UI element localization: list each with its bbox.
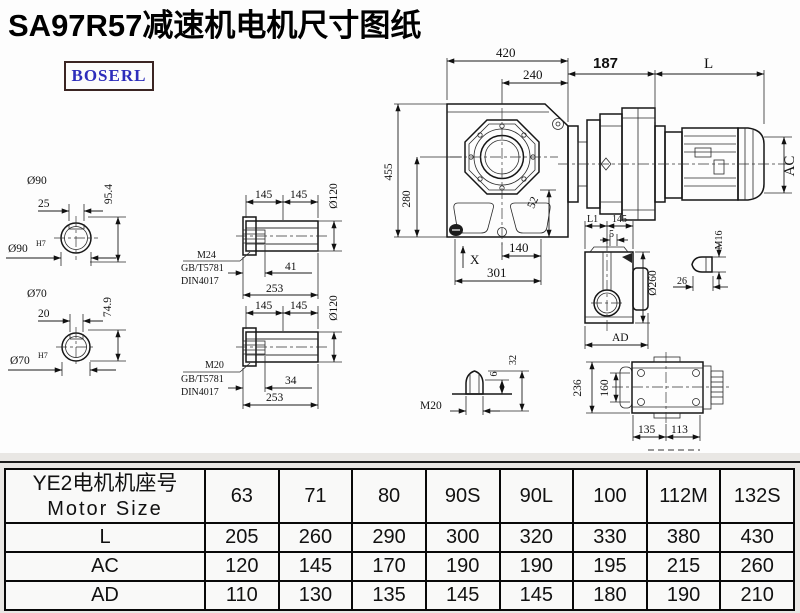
dim-AC: AC [782, 156, 798, 177]
dim-70h7-label: Ø70 [10, 355, 30, 367]
cell-L-90s: 300 [426, 523, 500, 552]
dim-140: 140 [509, 240, 529, 255]
dim-32: 32 [508, 355, 519, 365]
cell-AC-100: 195 [573, 552, 647, 581]
table-row-AC: AC 120 145 170 190 190 195 215 260 [5, 552, 794, 581]
dim-d260: Ø260 [647, 270, 659, 296]
dim-5: 5 [609, 229, 614, 240]
cell-L-100: 330 [573, 523, 647, 552]
m16-plug-detail: M16 26 [673, 231, 728, 291]
cell-AC-132s: 260 [720, 552, 794, 581]
dim-145-b: 145 [290, 189, 308, 201]
dim-74-9: 74.9 [102, 297, 114, 317]
row-label-L: L [5, 523, 205, 552]
cell-AD-90s: 145 [426, 581, 500, 610]
dim-145-c: 145 [255, 300, 273, 312]
dim-420: 420 [496, 45, 516, 60]
dim-70-label: Ø70 [27, 288, 47, 300]
dim-113: 113 [671, 424, 688, 436]
table-top-separator [0, 461, 800, 463]
dim-d120-b: Ø120 [328, 295, 340, 321]
technical-drawing: Ø90 25 95.4 Ø90 H7 Ø70 [0, 0, 800, 460]
label-gbt5781-b: GB/T5781 [181, 374, 224, 385]
cell-L-80: 290 [352, 523, 426, 552]
table-row-AD: AD 110 130 135 145 145 180 190 210 [5, 581, 794, 610]
dim-455: 455 [383, 163, 395, 181]
label-m24: M24 [197, 250, 216, 261]
cell-AC-112m: 215 [647, 552, 721, 581]
row-label-AC: AC [5, 552, 205, 581]
dim-280: 280 [401, 190, 413, 208]
label-m16: M16 [714, 231, 725, 250]
motor-side-view: 187 L AC [558, 55, 798, 220]
dim-41: 41 [285, 261, 297, 273]
drawing-sheet: SA97R57减速机电机尺寸图纸 BOSERL Ø90 [0, 0, 800, 613]
table-header-row: YE2电机机座号 Motor Size 63 71 80 90S 90L 100… [5, 469, 794, 523]
col-100: 100 [573, 469, 647, 523]
m20-cone-detail: M20 6 32 [420, 355, 529, 415]
dim-AD: AD [612, 332, 629, 344]
label-din4017-b: DIN4017 [181, 387, 219, 398]
dim-240: 240 [523, 67, 543, 82]
cell-L-132s: 430 [720, 523, 794, 552]
col-132s: 132S [720, 469, 794, 523]
dim-70h7-sup: H7 [38, 351, 48, 360]
cell-AD-90l: 145 [500, 581, 574, 610]
dim-95-4: 95.4 [103, 184, 115, 204]
cell-AD-71: 130 [279, 581, 353, 610]
hollow-shaft-section-top: 145 145 Ø120 M24 GB/T5781 DIN4017 41 253 [181, 183, 342, 299]
label-x-mark: X [470, 252, 480, 267]
cell-AC-71: 145 [279, 552, 353, 581]
cell-AC-80: 170 [352, 552, 426, 581]
shaft-end-view-90: Ø90 25 95.4 Ø90 H7 [6, 175, 126, 266]
cell-L-112m: 380 [647, 523, 721, 552]
label-din4017-a: DIN4017 [181, 276, 219, 287]
col-90l: 90L [500, 469, 574, 523]
dim-187: 187 [593, 55, 618, 72]
dim-301: 301 [487, 265, 507, 280]
dim-236: 236 [572, 379, 584, 397]
cell-L-71: 260 [279, 523, 353, 552]
header-cn: YE2电机机座号 [6, 471, 204, 496]
dim-253-a: 253 [266, 283, 284, 295]
dim-160: 160 [599, 379, 611, 397]
dim-145-e: 145 [612, 214, 627, 225]
col-71: 71 [279, 469, 353, 523]
table-row-L: L 205 260 290 300 320 330 380 430 [5, 523, 794, 552]
cell-L-90l: 320 [500, 523, 574, 552]
dim-L: L [704, 56, 713, 72]
dim-90-label: Ø90 [27, 175, 47, 187]
gearbox-output-side-view: L1 145 5 Ø260 AD [585, 214, 659, 349]
cell-AD-80: 135 [352, 581, 426, 610]
cell-AC-63: 120 [205, 552, 279, 581]
dim-90h7-label: Ø90 [8, 243, 28, 255]
hollow-shaft-section-bottom: 145 145 Ø120 M20 GB/T5781 DIN4017 34 253 [181, 295, 342, 409]
dim-34: 34 [285, 375, 297, 387]
label-gbt5781-a: GB/T5781 [181, 263, 224, 274]
dim-135: 135 [638, 424, 656, 436]
dim-d120-a: Ø120 [328, 183, 340, 209]
dim-25: 25 [38, 198, 50, 210]
dim-253-b: 253 [266, 392, 284, 404]
dim-L1: L1 [587, 214, 598, 225]
dim-145-d: 145 [290, 300, 308, 312]
cell-AD-132s: 210 [720, 581, 794, 610]
cell-AD-112m: 190 [647, 581, 721, 610]
header-en: Motor Size [6, 497, 204, 521]
row-label-AD: AD [5, 581, 205, 610]
motor-size-table: YE2电机机座号 Motor Size 63 71 80 90S 90L 100… [4, 468, 795, 611]
housing-top-view: 160 236 135 113 [572, 352, 730, 450]
col-90s: 90S [426, 469, 500, 523]
gearbox-front-view: 420 240 455 280 52 140 301 X [383, 45, 568, 285]
dim-52: 52 [525, 195, 541, 211]
label-m20-cone: M20 [420, 400, 442, 412]
dim-90h7-sup: H7 [36, 239, 46, 248]
dim-145-a: 145 [255, 189, 273, 201]
cell-AD-100: 180 [573, 581, 647, 610]
col-80: 80 [352, 469, 426, 523]
dim-20: 20 [38, 308, 50, 320]
col-63: 63 [205, 469, 279, 523]
cell-AC-90s: 190 [426, 552, 500, 581]
shaft-end-view-70: Ø70 20 74.9 Ø70 H7 [8, 288, 126, 376]
cell-AC-90l: 190 [500, 552, 574, 581]
cell-L-63: 205 [205, 523, 279, 552]
label-m20-shaft: M20 [205, 360, 224, 371]
col-112m: 112M [647, 469, 721, 523]
cell-AD-63: 110 [205, 581, 279, 610]
dim-26: 26 [677, 276, 687, 287]
dim-6: 6 [489, 372, 500, 377]
table-header-motor-size: YE2电机机座号 Motor Size [5, 469, 205, 523]
